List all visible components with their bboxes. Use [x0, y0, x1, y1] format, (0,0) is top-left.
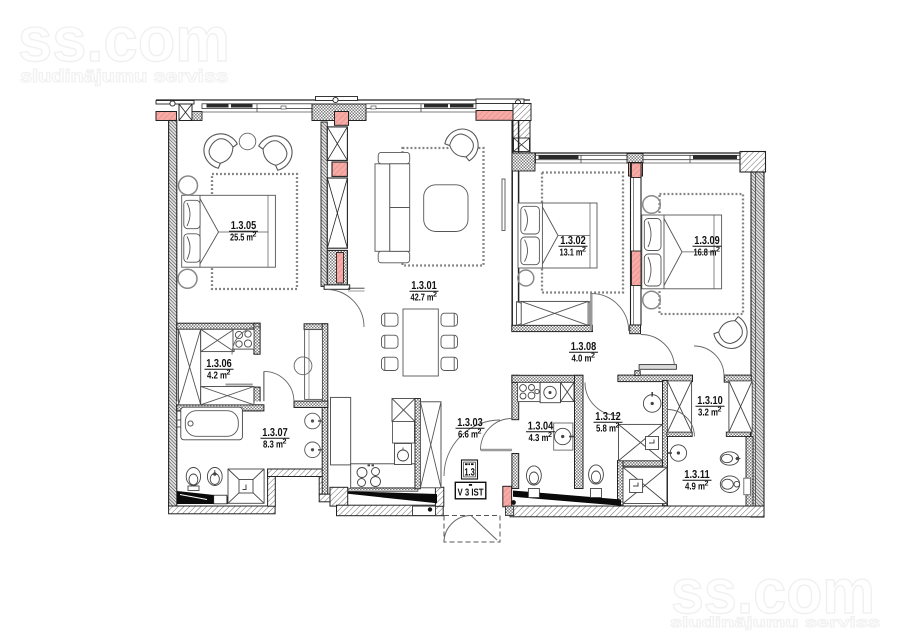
svg-text:1.3: 1.3 — [464, 467, 475, 479]
svg-text:6.6 m: 6.6 m — [458, 430, 478, 441]
svg-text:4.0 m: 4.0 m — [572, 354, 592, 365]
svg-text:2: 2 — [548, 432, 552, 439]
svg-text:2: 2 — [582, 247, 586, 254]
svg-text:sludinājumu serviss: sludinājumu serviss — [670, 615, 880, 631]
svg-text:2: 2 — [705, 481, 709, 488]
svg-text:2: 2 — [227, 370, 231, 377]
svg-text:1.3.11: 1.3.11 — [684, 469, 710, 481]
svg-text:4.3 m: 4.3 m — [529, 433, 549, 444]
svg-text:2: 2 — [716, 247, 720, 254]
svg-text:5.8 m: 5.8 m — [596, 424, 616, 435]
svg-text:2: 2 — [433, 292, 437, 299]
svg-text:1.3.02: 1.3.02 — [560, 235, 586, 247]
svg-text:4.2 m: 4.2 m — [207, 371, 227, 382]
svg-text:1.3.04: 1.3.04 — [528, 421, 554, 433]
svg-text:1.3.01: 1.3.01 — [411, 280, 437, 292]
svg-text:1.3.09: 1.3.09 — [694, 235, 720, 247]
svg-text:1.3.12: 1.3.12 — [595, 411, 621, 423]
svg-text:2: 2 — [591, 353, 595, 360]
svg-text:4.9 m: 4.9 m — [685, 482, 705, 493]
svg-text:sludinājumu serviss: sludinājumu serviss — [20, 66, 228, 86]
svg-text:16.8 m: 16.8 m — [694, 248, 717, 259]
svg-text:1.3.05: 1.3.05 — [231, 220, 257, 232]
svg-text:8.3 m: 8.3 m — [263, 440, 283, 451]
svg-text:V 3 IST: V 3 IST — [458, 488, 484, 499]
svg-text:1.3.03: 1.3.03 — [457, 417, 483, 429]
svg-text:ss.com: ss.com — [18, 5, 230, 75]
svg-text:2: 2 — [253, 232, 257, 239]
svg-text:1.3.10: 1.3.10 — [697, 395, 723, 407]
svg-text:1.3.07: 1.3.07 — [262, 427, 288, 439]
svg-text:2: 2 — [478, 429, 482, 436]
svg-text:2: 2 — [718, 407, 722, 414]
svg-text:2: 2 — [616, 423, 620, 430]
svg-text:1.3.08: 1.3.08 — [571, 341, 597, 353]
svg-text:2: 2 — [283, 439, 287, 446]
svg-text:25.5 m: 25.5 m — [230, 233, 253, 244]
svg-text:1.3.06: 1.3.06 — [206, 358, 232, 370]
svg-text:3.2 m: 3.2 m — [698, 408, 718, 419]
svg-text:13.1 m: 13.1 m — [560, 248, 583, 259]
svg-text:42.7 m: 42.7 m — [411, 293, 434, 304]
